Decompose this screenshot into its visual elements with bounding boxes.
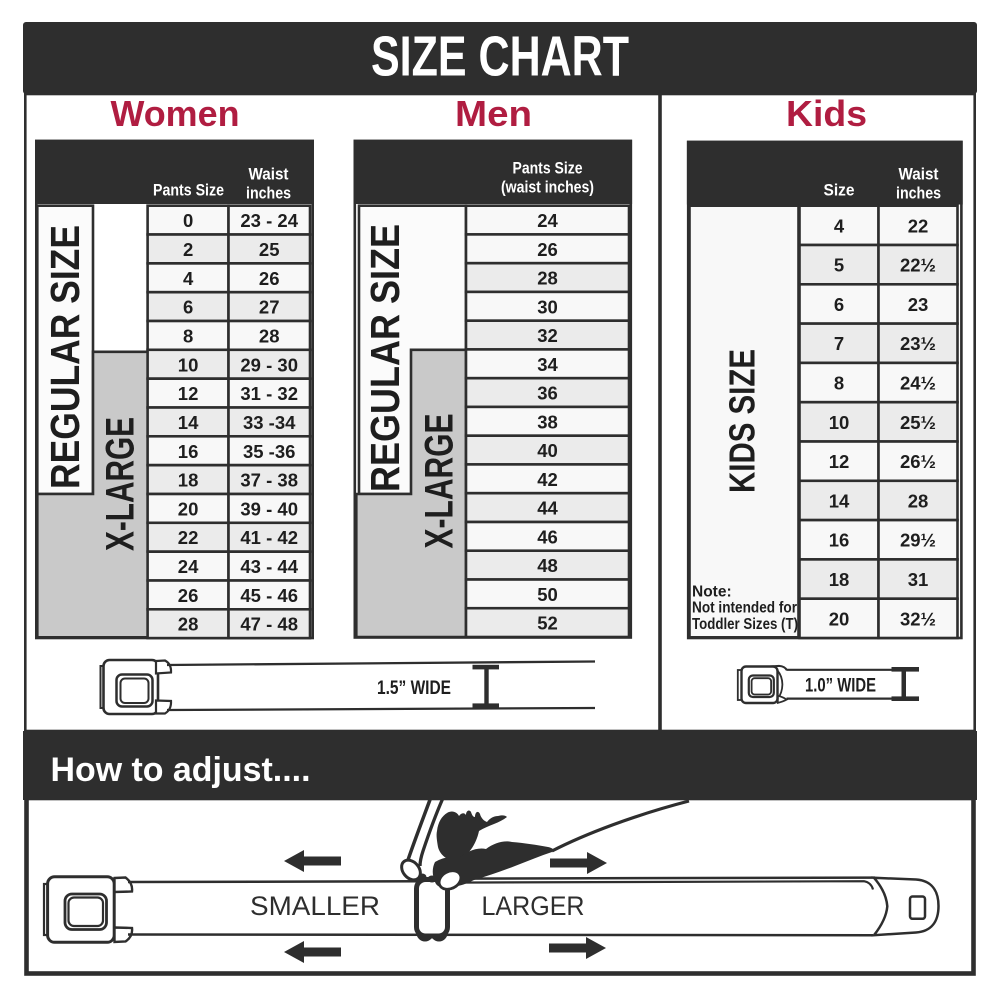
svg-text:45 - 46: 45 - 46	[240, 585, 298, 606]
svg-text:50: 50	[537, 584, 558, 605]
svg-text:Men: Men	[455, 93, 532, 134]
svg-text:6: 6	[834, 294, 844, 315]
svg-text:38: 38	[537, 411, 558, 432]
svg-text:26½: 26½	[900, 451, 936, 472]
svg-text:23½: 23½	[900, 333, 936, 354]
svg-text:24½: 24½	[900, 373, 936, 394]
svg-text:28: 28	[537, 268, 558, 289]
svg-text:7: 7	[834, 333, 844, 354]
svg-text:0: 0	[183, 210, 193, 231]
svg-text:31: 31	[908, 569, 929, 590]
svg-text:16: 16	[829, 530, 850, 551]
svg-text:14: 14	[178, 412, 199, 433]
svg-text:Toddler Sizes (T): Toddler Sizes (T)	[692, 616, 798, 633]
svg-text:23: 23	[908, 294, 929, 315]
svg-text:33 -34: 33 -34	[243, 412, 296, 433]
svg-text:1.5” WIDE: 1.5” WIDE	[377, 677, 451, 699]
svg-text:12: 12	[178, 383, 199, 404]
svg-text:23 - 24: 23 - 24	[240, 210, 298, 231]
svg-text:28: 28	[908, 490, 929, 511]
svg-text:KIDS SIZE: KIDS SIZE	[722, 349, 763, 493]
svg-text:20: 20	[178, 498, 199, 519]
svg-text:26: 26	[178, 585, 199, 606]
svg-text:LARGER: LARGER	[482, 891, 585, 921]
svg-text:42: 42	[537, 469, 558, 490]
svg-text:Pants Size: Pants Size	[513, 160, 583, 178]
svg-text:36: 36	[537, 383, 558, 404]
svg-text:44: 44	[537, 498, 558, 519]
svg-text:Waist: Waist	[899, 166, 939, 184]
svg-text:12: 12	[829, 451, 850, 472]
svg-text:Note:: Note:	[692, 584, 732, 601]
svg-text:39 - 40: 39 - 40	[240, 498, 298, 519]
svg-text:10: 10	[178, 354, 199, 375]
svg-text:18: 18	[829, 569, 850, 590]
svg-text:REGULAR SIZE: REGULAR SIZE	[362, 224, 408, 492]
svg-text:inches: inches	[246, 185, 291, 203]
svg-text:28: 28	[178, 614, 199, 635]
svg-text:1.0” WIDE: 1.0” WIDE	[805, 676, 876, 697]
svg-text:8: 8	[183, 325, 193, 346]
svg-text:28: 28	[259, 325, 280, 346]
svg-text:Women: Women	[111, 93, 240, 134]
svg-text:24: 24	[178, 556, 199, 577]
svg-text:4: 4	[183, 268, 194, 289]
svg-text:6: 6	[183, 297, 193, 318]
svg-text:32: 32	[537, 325, 558, 346]
svg-text:34: 34	[537, 354, 558, 375]
svg-text:18: 18	[178, 470, 199, 491]
svg-text:52: 52	[537, 613, 558, 634]
svg-text:40: 40	[537, 440, 558, 461]
svg-text:43 - 44: 43 - 44	[240, 556, 298, 577]
svg-text:30: 30	[537, 296, 558, 317]
svg-text:Waist: Waist	[249, 166, 289, 184]
svg-text:48: 48	[537, 555, 558, 576]
svg-text:24: 24	[537, 210, 558, 231]
svg-text:37 - 38: 37 - 38	[240, 470, 298, 491]
svg-text:8: 8	[834, 373, 844, 394]
svg-text:How to adjust....: How to adjust....	[51, 751, 311, 789]
svg-text:31 - 32: 31 - 32	[240, 383, 298, 404]
svg-text:46: 46	[537, 526, 558, 547]
svg-text:25: 25	[259, 239, 280, 260]
svg-text:35 -36: 35 -36	[243, 441, 295, 462]
svg-text:2: 2	[183, 239, 193, 260]
svg-text:X-LARGE: X-LARGE	[418, 414, 462, 549]
svg-text:10: 10	[829, 412, 850, 433]
svg-text:Pants Size: Pants Size	[153, 182, 224, 200]
svg-text:22½: 22½	[900, 255, 936, 276]
svg-text:(waist inches): (waist inches)	[501, 179, 594, 197]
svg-text:Not intended for: Not intended for	[692, 600, 797, 617]
svg-text:16: 16	[178, 441, 199, 462]
svg-text:41 - 42: 41 - 42	[240, 527, 298, 548]
svg-text:29 - 30: 29 - 30	[240, 354, 298, 375]
svg-text:22: 22	[178, 527, 199, 548]
svg-text:26: 26	[259, 268, 280, 289]
svg-text:29½: 29½	[900, 530, 936, 551]
svg-text:20: 20	[829, 608, 850, 629]
svg-text:32½: 32½	[900, 608, 936, 629]
svg-text:Size: Size	[824, 182, 855, 200]
svg-text:SMALLER: SMALLER	[250, 891, 380, 921]
svg-text:25½: 25½	[900, 412, 936, 433]
svg-text:27: 27	[259, 297, 280, 318]
svg-text:22: 22	[908, 215, 929, 236]
svg-text:X-LARGE: X-LARGE	[99, 417, 143, 551]
svg-text:5: 5	[834, 255, 844, 276]
svg-text:Kids: Kids	[786, 93, 867, 134]
svg-text:4: 4	[834, 215, 845, 236]
svg-text:26: 26	[537, 239, 558, 260]
svg-text:47 - 48: 47 - 48	[240, 614, 298, 635]
svg-text:inches: inches	[896, 185, 941, 203]
svg-text:SIZE CHART: SIZE CHART	[371, 25, 629, 88]
svg-text:14: 14	[829, 490, 850, 511]
svg-text:REGULAR SIZE: REGULAR SIZE	[42, 225, 88, 489]
